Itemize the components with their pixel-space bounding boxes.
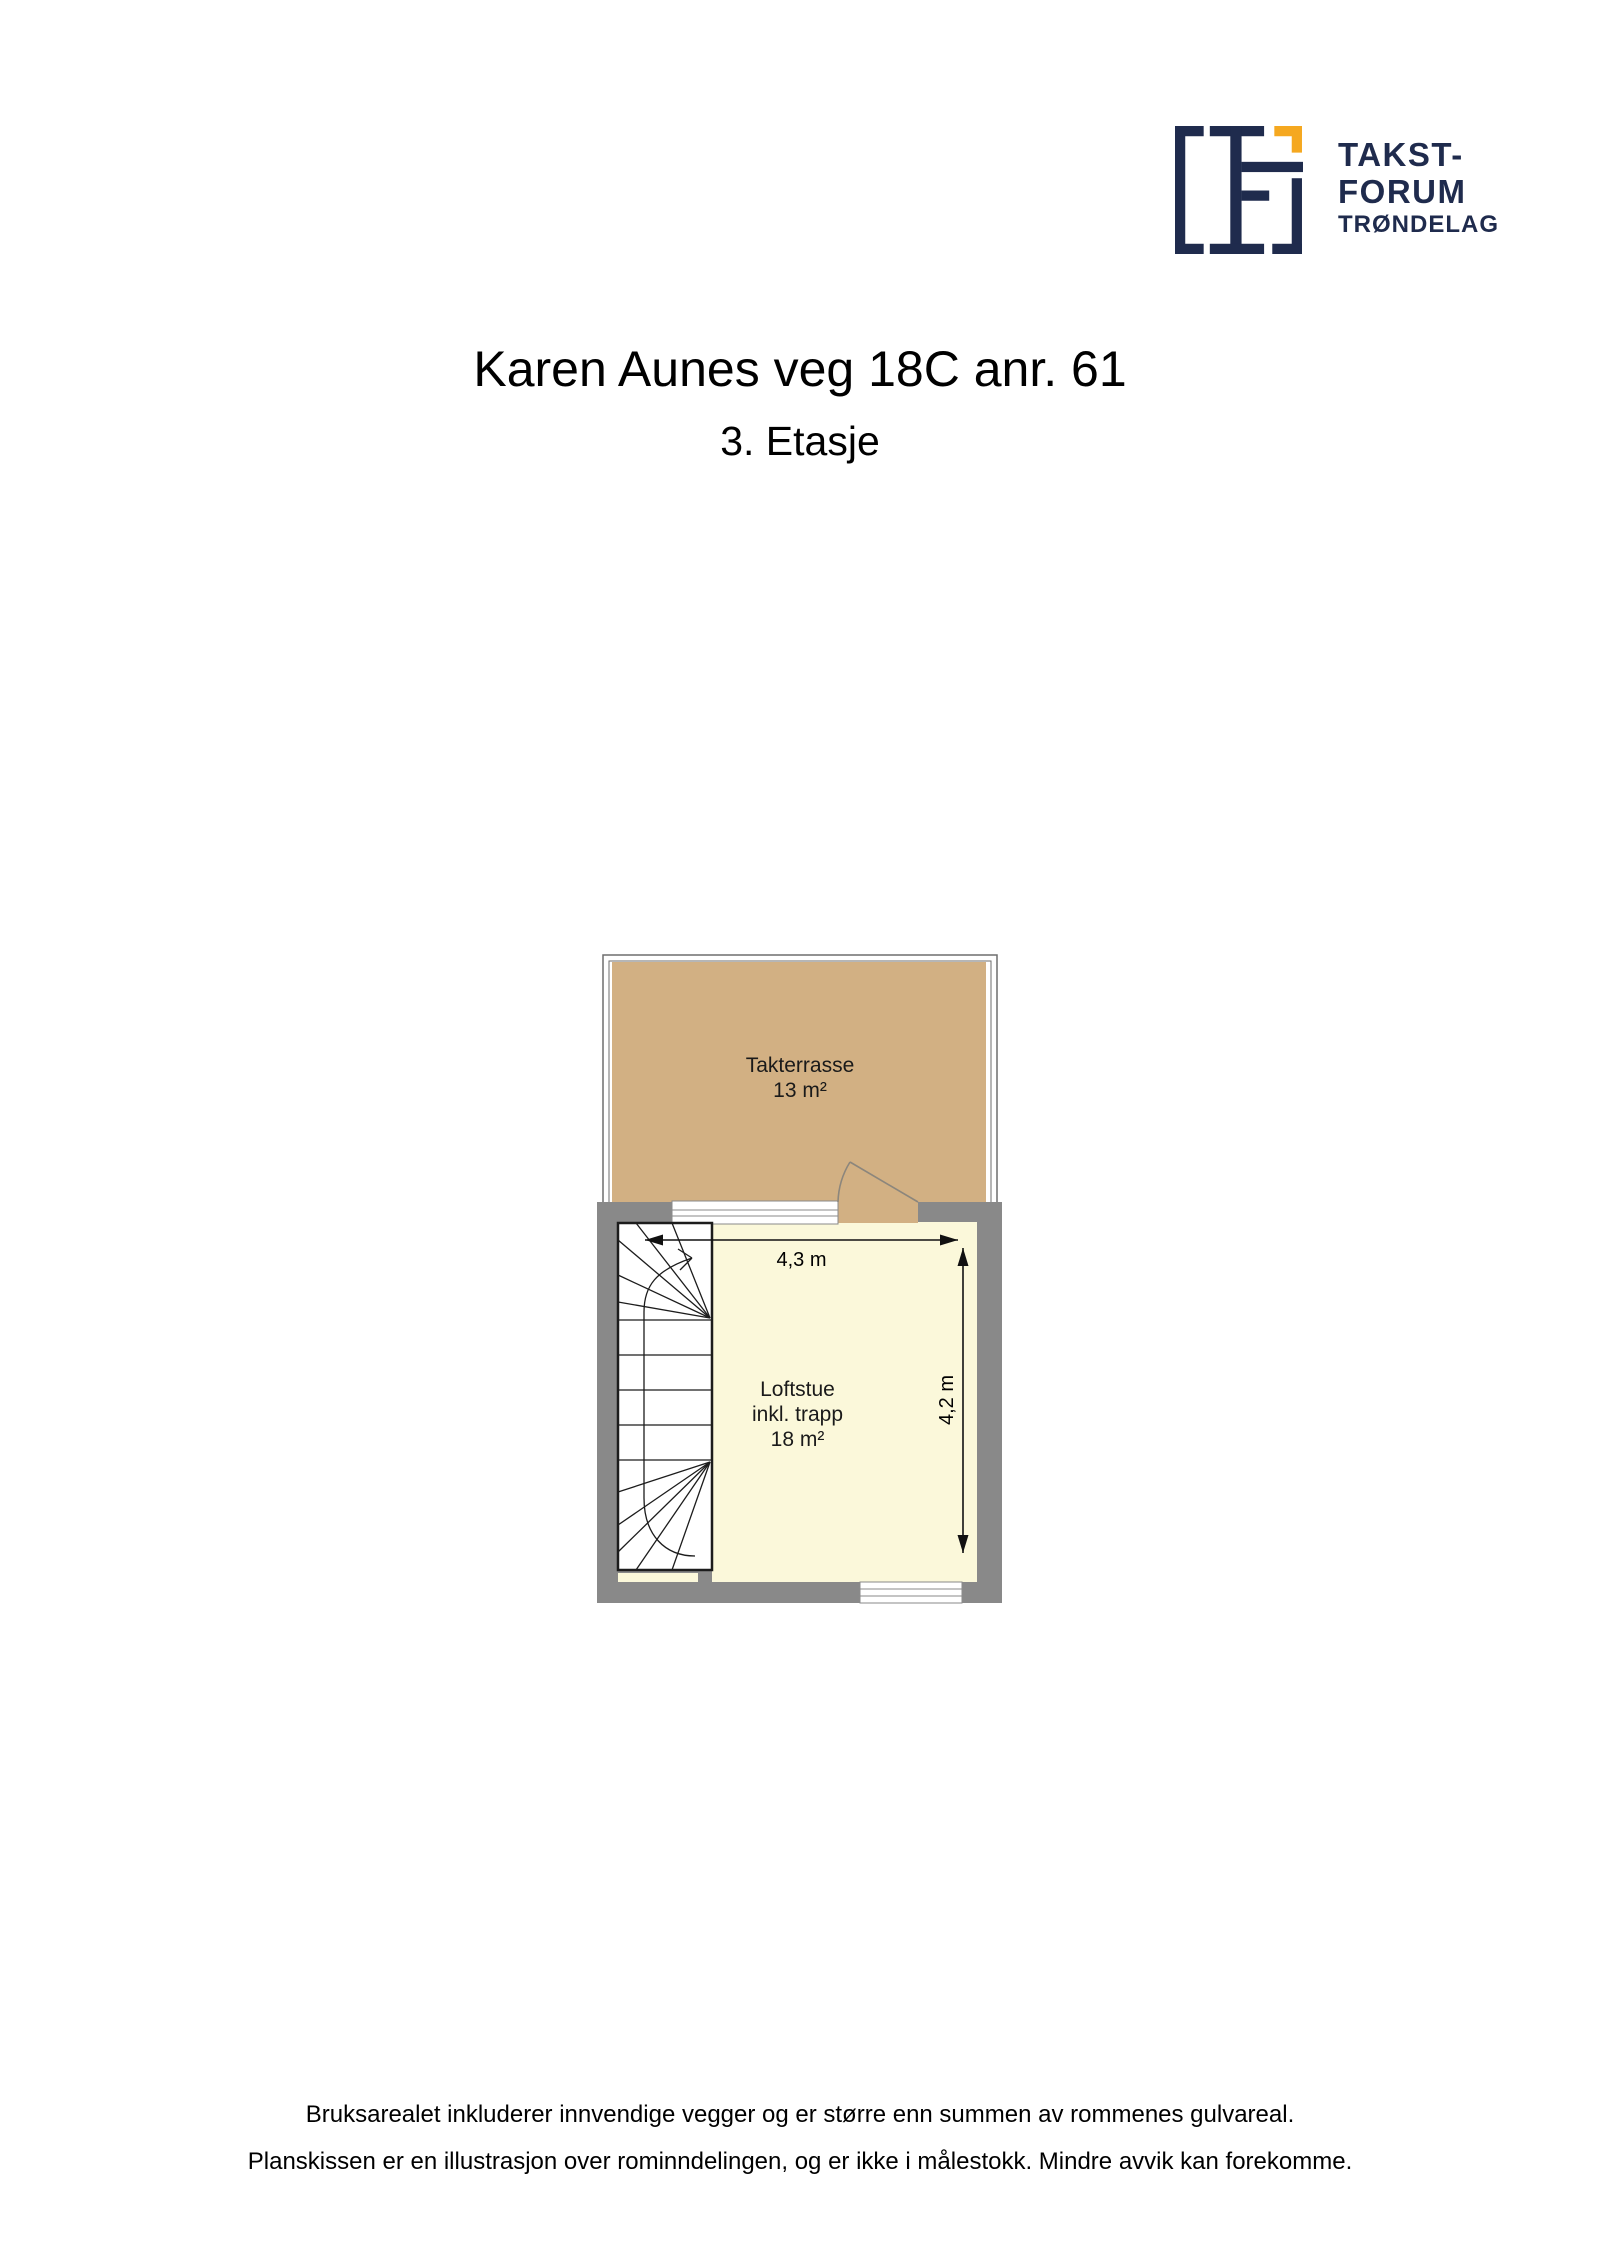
terrace-area-value: 13 m² — [603, 1078, 997, 1103]
page-title: Karen Aunes veg 18C anr. 61 — [0, 341, 1600, 397]
floorplan-drawing — [590, 940, 1010, 1620]
room-area-value: 18 m² — [618, 1427, 977, 1452]
room-label: Loftstue inkl. trapp 18 m² — [618, 1377, 977, 1452]
footer-disclaimer-line1: Bruksarealet inkluderer innvendige vegge… — [0, 2100, 1600, 2130]
dimension-width-label: 4,3 m — [645, 1249, 958, 1271]
logo-text-line3: TRØNDELAG — [1338, 213, 1499, 237]
window-bottom — [860, 1582, 962, 1603]
terrace-name: Takterrasse — [603, 1053, 997, 1078]
terrace-label: Takterrasse 13 m² — [603, 1053, 997, 1103]
footer-disclaimer-line2: Planskissen er en illustrasjon over romi… — [0, 2147, 1600, 2177]
room-name-line2: inkl. trapp — [618, 1402, 977, 1427]
taktforum-logo-icon — [1175, 126, 1303, 254]
page: TAKST- FORUM TRØNDELAG Karen Aunes veg 1… — [0, 0, 1600, 2263]
floor-subtitle: 3. Etasje — [0, 418, 1600, 464]
floor-strip-under-stair — [618, 1573, 698, 1582]
floorplan: Takterrasse 13 m² Loftstue inkl. trapp 1… — [590, 940, 1010, 1620]
door-opening — [838, 1202, 918, 1223]
dimension-height-label: 4,2 m — [936, 1348, 958, 1452]
logo-text-line1: TAKST- — [1338, 138, 1464, 171]
logo-text-line2: FORUM — [1338, 175, 1466, 208]
window-to-terrace — [672, 1201, 838, 1224]
room-name-line1: Loftstue — [618, 1377, 977, 1402]
